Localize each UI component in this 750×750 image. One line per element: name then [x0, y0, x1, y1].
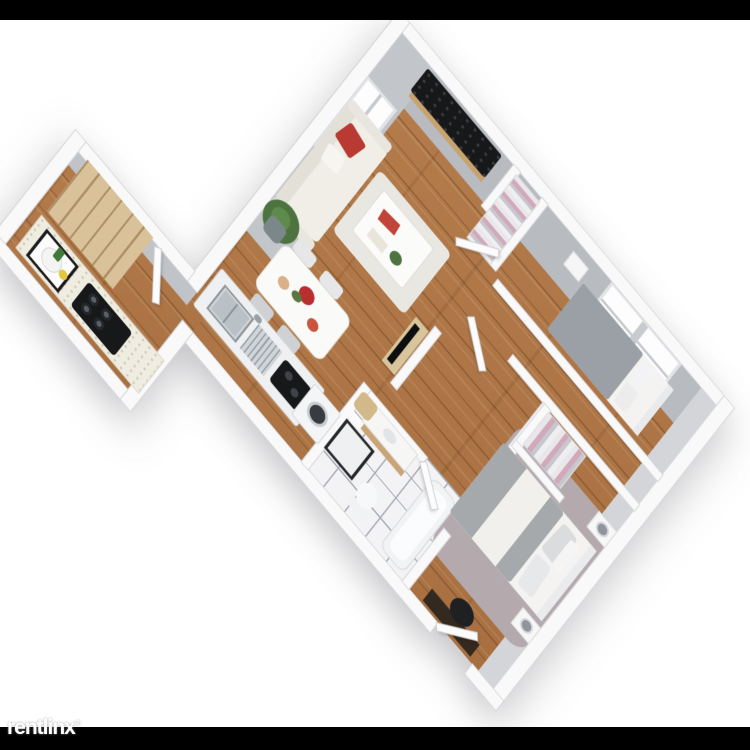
watermark-text: rentlinx [7, 716, 75, 739]
floorplan-image: rentlinx® [0, 0, 750, 750]
letterbox-top-bar [0, 0, 750, 20]
watermark-logo: rentlinx® [7, 716, 80, 740]
watermark-registered-mark: ® [75, 719, 80, 728]
letterbox-bottom-bar [0, 727, 750, 750]
